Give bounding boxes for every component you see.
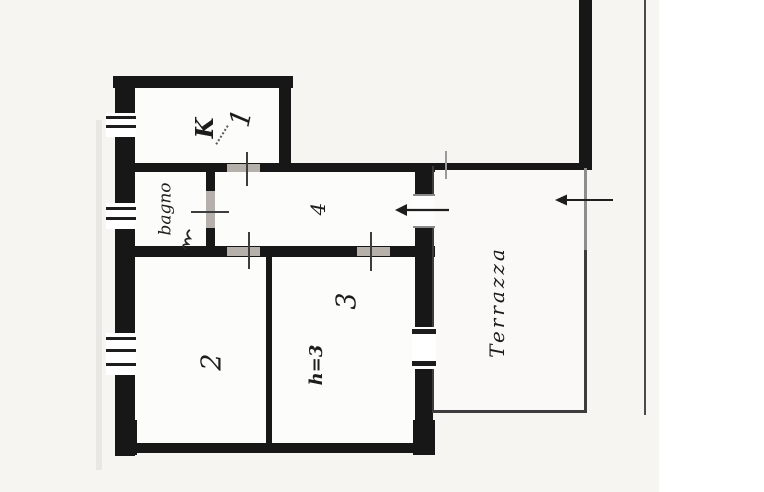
tick-door-room2 <box>248 232 250 269</box>
wall-kitchen-top <box>113 76 293 88</box>
door-room3 <box>357 247 390 256</box>
terrace-entrance-arrow-icon <box>552 191 614 213</box>
entrance-door-frame <box>413 226 435 228</box>
door-kitchen <box>227 164 260 172</box>
wall-corner-bottom-right <box>413 420 435 455</box>
tick-door-room3 <box>370 232 372 271</box>
wall-hall-top <box>115 163 435 172</box>
window-room3-frame <box>412 361 436 366</box>
terrace-edge-bottom <box>432 410 587 413</box>
room-number-3: 3 <box>334 292 361 309</box>
wall-room-divider <box>266 253 272 450</box>
tick-terrace-top <box>445 151 447 179</box>
door-bathroom <box>206 191 215 228</box>
room-number-hall: 4 <box>308 203 328 216</box>
window-room2-frame <box>106 363 136 366</box>
tick-door-bathroom <box>191 211 229 213</box>
door-room2 <box>227 247 260 256</box>
apartment-entrance-arrow-icon <box>392 201 450 223</box>
tick-door-kitchen <box>246 152 248 186</box>
room-label-bathroom: bagno <box>158 182 175 235</box>
room-3 <box>272 257 415 443</box>
window-room2-frame <box>106 337 136 340</box>
window-bathroom-frame <box>106 207 136 210</box>
wall-terrace-top <box>435 163 592 170</box>
terrace-edge-right-lower <box>584 250 587 412</box>
property-line-right <box>644 0 646 415</box>
terrace-label: Terrazza <box>487 246 507 358</box>
entrance-door-frame <box>413 194 435 196</box>
window-room2-frame <box>106 349 136 352</box>
room-label-kitchen: K <box>193 118 217 139</box>
wall-corner-bottom-left <box>115 420 137 455</box>
scan-artifact <box>96 120 102 470</box>
wall-building-top-right <box>579 0 592 168</box>
window-kitchen-frame <box>106 116 136 119</box>
window-kitchen-frame <box>106 125 136 128</box>
room3-height-note: h=3 <box>308 345 326 386</box>
room-2 <box>135 257 266 443</box>
room-number-2: 2 <box>199 353 226 370</box>
window-room3-frame <box>412 329 436 334</box>
window-bathroom-frame <box>106 217 136 220</box>
wall-bottom-exterior <box>115 443 435 453</box>
wall-kitchen-right <box>279 76 291 168</box>
floor-plan-scan: K 1 bagno 4 2 3 h=3 Terrazza <box>0 0 764 492</box>
